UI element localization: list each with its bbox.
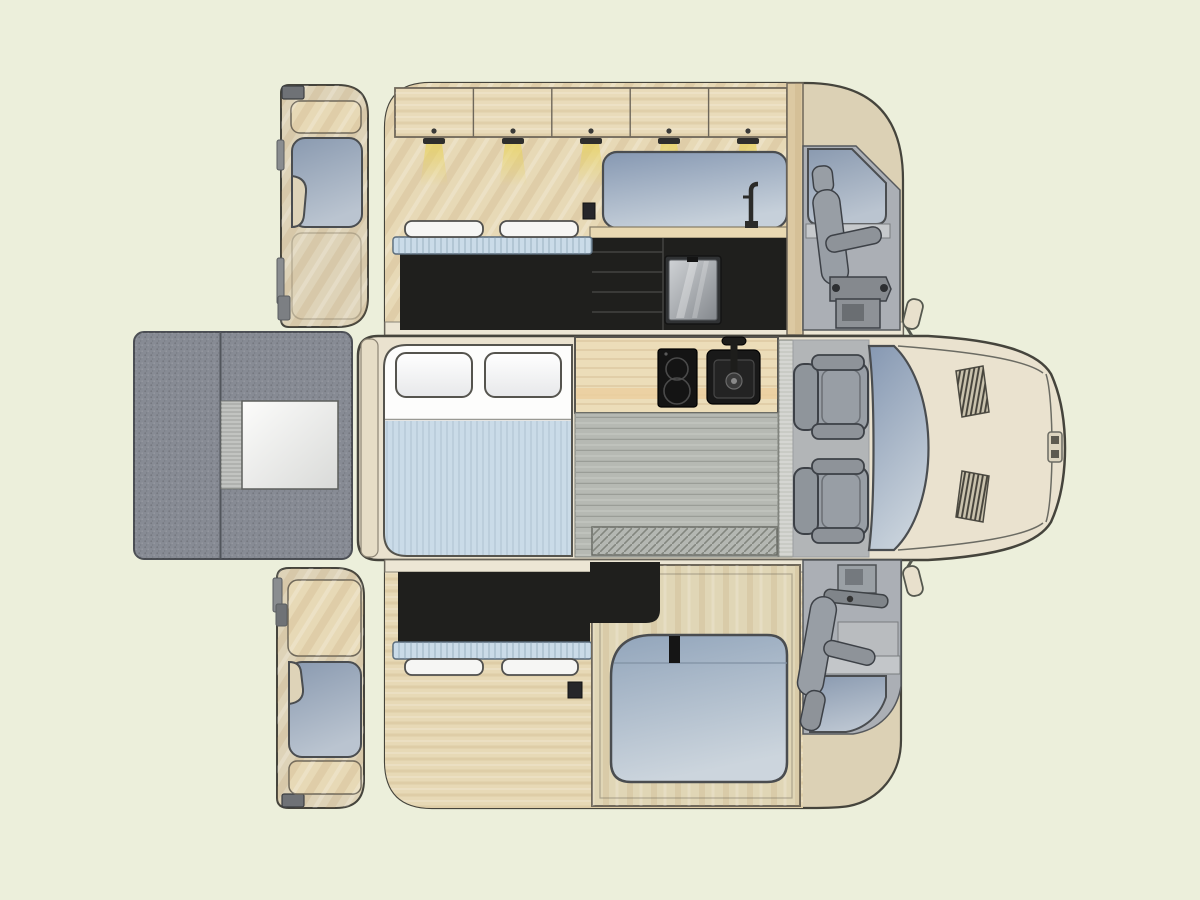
rear-door-top — [277, 85, 368, 327]
galley-counter-plan — [575, 337, 778, 413]
seat-armrest — [812, 424, 864, 439]
seat-armrest — [812, 528, 864, 543]
bed-pillow — [500, 221, 578, 237]
front-emblem — [1048, 432, 1062, 462]
counter-edge — [590, 227, 803, 238]
cooktop — [658, 349, 697, 407]
rear-view-panel — [134, 332, 352, 559]
bed-pillow — [502, 659, 578, 675]
faucet-handle — [722, 337, 746, 345]
door-check-strap — [278, 296, 290, 320]
rear-doors-plan — [361, 339, 378, 557]
white-hatch-panel — [242, 401, 338, 489]
hood-vent — [956, 471, 989, 522]
faucet-stem — [731, 344, 738, 372]
door-window-notch — [292, 176, 306, 227]
seat-backrest — [794, 468, 818, 534]
bed-base-elevation — [400, 254, 590, 330]
campervan-floorplan-canvas — [0, 0, 1200, 900]
bed-pillow — [405, 221, 483, 237]
cab-lower-section — [795, 560, 901, 734]
bed-pillow — [405, 659, 483, 675]
fridge-handle — [687, 257, 698, 262]
window-pillar-mark — [669, 636, 680, 663]
seat-armrest — [812, 355, 864, 370]
door-window-notch — [289, 662, 303, 704]
bed-pillow — [485, 353, 561, 397]
bed-pillow — [396, 353, 472, 397]
mattress-ribs — [393, 237, 592, 254]
sliding-door-window — [611, 635, 787, 782]
wall-outlet — [568, 682, 582, 698]
bed-base-elevation — [398, 572, 590, 642]
bed-side-elevation — [385, 560, 901, 808]
seat-backrest — [794, 364, 818, 430]
wall-outlet — [583, 203, 595, 219]
door-check-strap — [276, 604, 287, 626]
rear-door-bottom — [273, 568, 364, 808]
bed-plan — [384, 345, 572, 556]
door-latch — [282, 86, 304, 99]
cab-seat-plan-driver — [794, 355, 868, 439]
galley-window — [603, 152, 787, 228]
door-hinge — [277, 140, 284, 170]
overhead-cabinet-block — [590, 562, 660, 623]
floor-plan — [358, 298, 1065, 598]
cab-seat-plan-passenger — [794, 459, 868, 543]
fridge — [665, 256, 721, 324]
galley-elevation — [385, 83, 903, 335]
door-latch — [282, 794, 304, 807]
hood-vent — [956, 366, 989, 417]
seat-armrest — [812, 459, 864, 474]
